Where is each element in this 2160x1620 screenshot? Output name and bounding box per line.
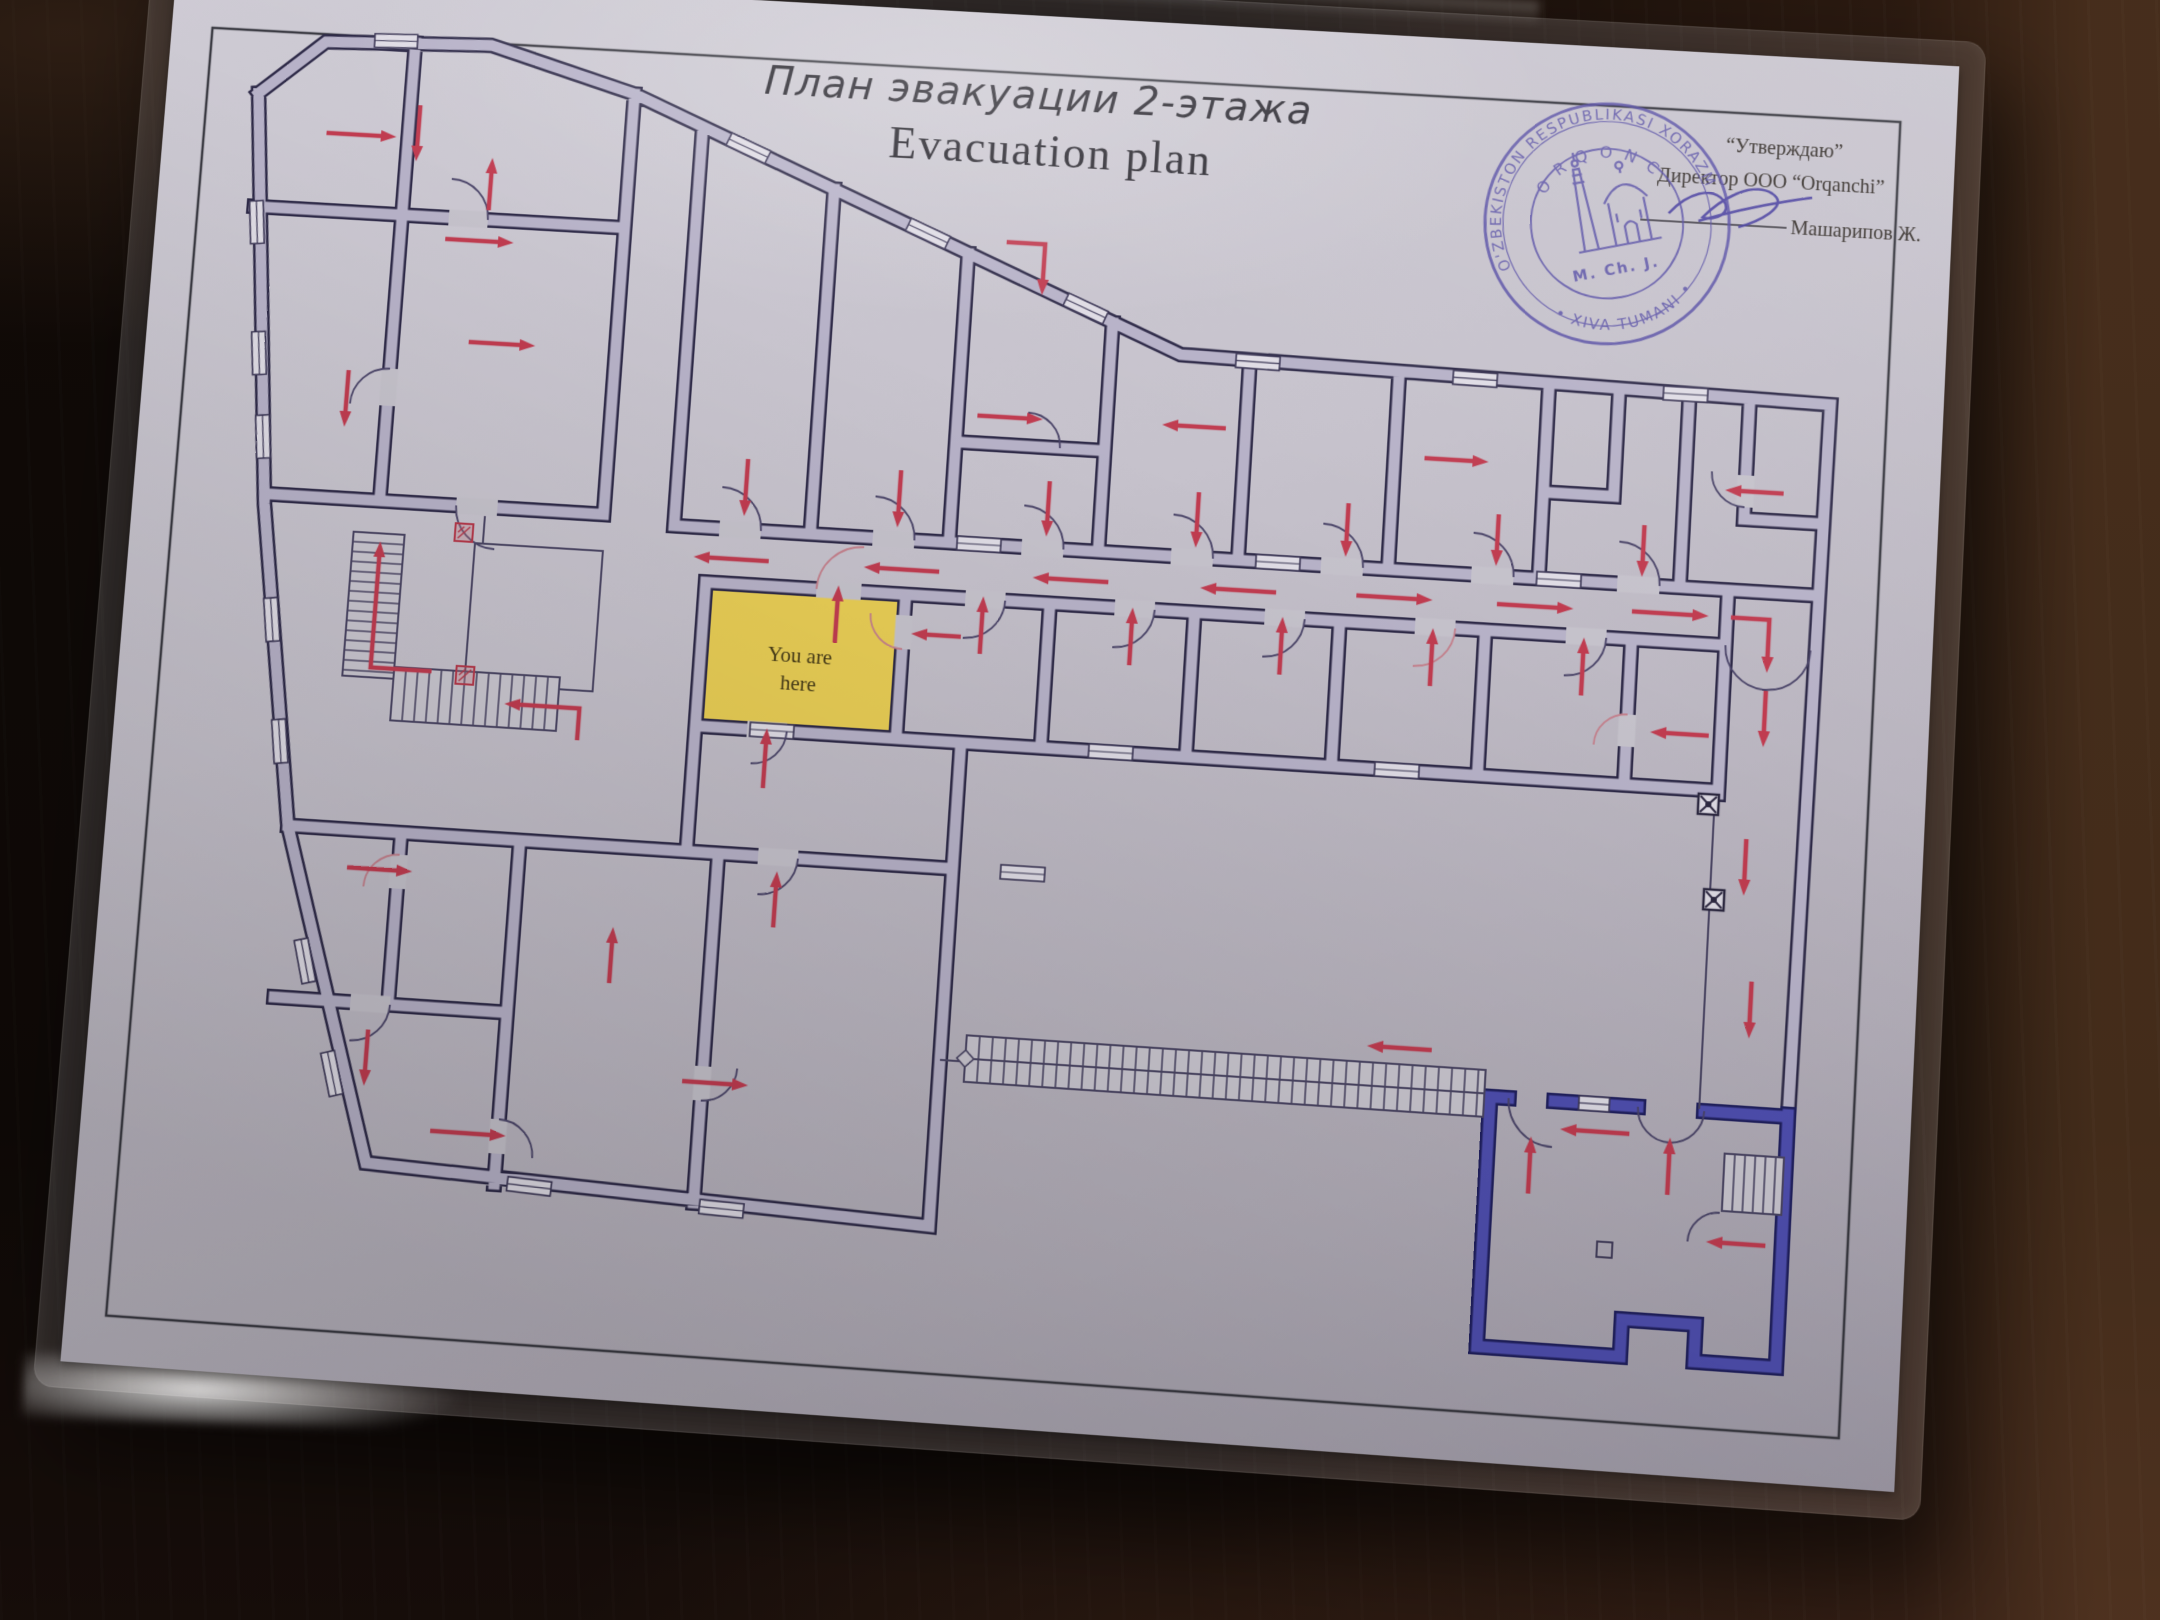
evacuation-arrow: [693, 551, 769, 567]
evacuation-arrow: [603, 927, 619, 984]
evacuation-arrow: [1737, 839, 1752, 896]
staircase: [390, 667, 560, 731]
floor-drain-icon: [1596, 1241, 1612, 1257]
wall-opening: [1321, 565, 1363, 568]
wall-opening: [1265, 617, 1305, 619]
wall-opening: [758, 856, 798, 859]
window: [1000, 865, 1045, 882]
window: [726, 133, 771, 164]
you-are-here-label-line1: You are: [767, 643, 833, 669]
wall-opening: [1617, 583, 1659, 586]
electrical-panel-icon: [455, 666, 474, 685]
evacuation-arrow: [1032, 572, 1108, 589]
evacuation-arrow: [1728, 617, 1775, 673]
evacuation-arrow: [338, 370, 354, 427]
window: [749, 722, 794, 739]
window: [1255, 554, 1300, 571]
window: [1374, 762, 1419, 779]
evacuation-plan-sheet: You are here План эвакуации 2-этажа Evac…: [60, 0, 1959, 1492]
signature-line: [1640, 220, 1786, 228]
evacuation-arrow: [1575, 637, 1590, 696]
evacuation-arrow: [1661, 1137, 1676, 1195]
wall-opening: [965, 598, 1005, 600]
door-swing-arc: [1687, 1211, 1719, 1244]
window: [1453, 370, 1498, 387]
window: [1663, 386, 1708, 402]
page-title-russian: План эвакуации 2-этажа: [763, 58, 1314, 134]
wall-opening: [449, 218, 488, 220]
evacuation-arrow: [1743, 981, 1758, 1039]
wall-opening: [902, 615, 904, 649]
evacuation-arrow: [682, 1075, 749, 1092]
evacuation-arrow: [1725, 484, 1784, 499]
window: [252, 331, 267, 375]
evacuation-arrow: [1632, 605, 1709, 622]
evacuation-arrow: [1706, 1236, 1766, 1252]
staircase: [1722, 1154, 1784, 1215]
wall-opening: [350, 1002, 390, 1005]
evacuation-arrow: [977, 410, 1043, 426]
plan-paper: You are here План эвакуации 2-этажа Evac…: [60, 0, 1959, 1492]
evacuation-arrow: [1490, 514, 1505, 566]
wall-opening: [1022, 547, 1064, 550]
evacuation-arrow: [891, 470, 907, 528]
window: [375, 34, 418, 48]
evacuation-arrow: [468, 336, 535, 352]
window: [1235, 354, 1280, 371]
evacuation-arrow: [326, 127, 397, 143]
evacuation-arrow: [1560, 1123, 1630, 1140]
evacuation-arrow: [1162, 419, 1226, 435]
window: [957, 536, 1002, 553]
window: [256, 415, 271, 459]
evacuation-arrow: [1636, 525, 1651, 578]
evacuation-arrow: [358, 1029, 374, 1086]
junction-box-icon: [1698, 794, 1719, 815]
approval-line3: Машарипов Ж.: [1790, 217, 1921, 246]
evacuation-arrow: [911, 628, 962, 643]
evacuation-arrow: [1040, 481, 1055, 537]
evacuation-arrow: [1200, 582, 1277, 599]
evacuation-arrow: [1522, 1136, 1537, 1194]
evacuation-arrow: [863, 561, 939, 578]
window: [264, 597, 280, 641]
wall-opening: [456, 505, 497, 508]
junction-box-icon: [1703, 889, 1724, 911]
wall-opening: [387, 369, 390, 406]
evacuation-arrow: [1367, 1040, 1433, 1056]
wall-opening: [1626, 714, 1628, 746]
evacuation-arrow: [1340, 503, 1355, 557]
evacuation-arrow: [767, 871, 783, 928]
evacuation-arrow: [1424, 628, 1439, 687]
wall-opening: [1171, 556, 1213, 559]
evacuation-arrow: [1497, 598, 1574, 615]
evacuation-arrow: [1757, 691, 1772, 748]
door-swing-arc: [1766, 648, 1811, 693]
evacuation-arrow: [1650, 726, 1709, 742]
window: [1088, 744, 1133, 761]
wall-opening: [1566, 635, 1606, 637]
evacuation-arrow: [1356, 589, 1433, 606]
wall-opening: [1471, 575, 1513, 578]
approval-line1: “Утверждаю”: [1725, 135, 1843, 163]
window: [250, 200, 265, 243]
evacuation-arrow: [738, 459, 754, 517]
svg-text:• XIVA TUMANI •: • XIVA TUMANI •: [1549, 277, 1702, 345]
evacuation-arrow: [445, 233, 514, 249]
stamp-ring-bottom-text: • XIVA TUMANI •: [1549, 277, 1702, 345]
wall-opening: [1115, 607, 1155, 609]
window: [1063, 293, 1108, 324]
stamp-center-text: M. Ch. J.: [1571, 253, 1661, 286]
window: [1536, 572, 1581, 589]
wall-opening: [873, 538, 915, 541]
electrical-panel-icon: [454, 523, 473, 542]
window: [905, 218, 950, 249]
wall-opening: [1415, 626, 1455, 628]
you-are-here-label-line2: here: [779, 672, 816, 696]
page-title-english: Evacuation plan: [887, 118, 1213, 186]
wall-opening: [719, 528, 760, 531]
floor-plan-drawing: You are here План эвакуации 2-этажа Evac…: [60, 0, 1959, 1492]
window: [1578, 1096, 1609, 1112]
window: [272, 719, 288, 764]
evacuation-arrow: [1424, 452, 1489, 468]
